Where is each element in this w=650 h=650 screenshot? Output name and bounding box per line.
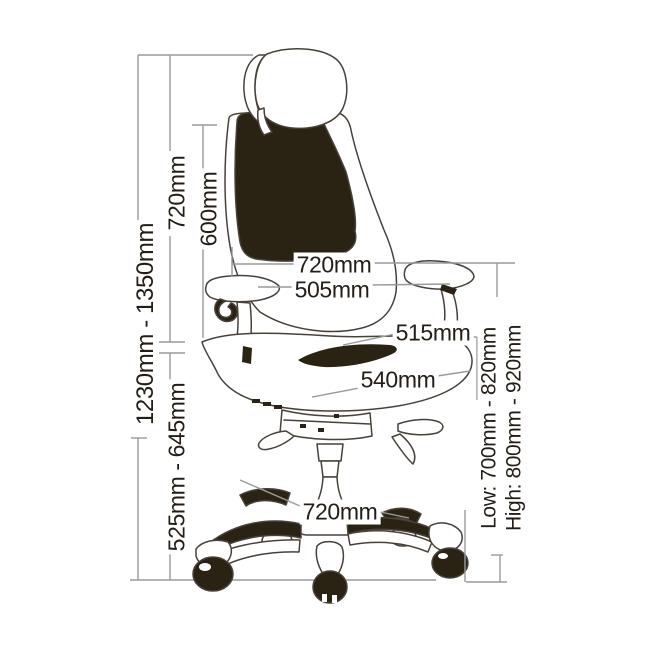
headrest-pillow	[255, 49, 347, 129]
left-armrest-lever	[215, 299, 238, 322]
armrest-span-width-label: 720mm	[294, 253, 375, 278]
seat-width-label: 505mm	[292, 278, 373, 303]
overall-height-label: 1230mm - 1350mm	[133, 220, 159, 428]
caster-front	[313, 571, 347, 603]
lever-hook-right	[392, 434, 415, 464]
seat-depth-label: 540mm	[358, 368, 439, 393]
headrest-to-seat-height-label: 720mm	[165, 153, 190, 234]
left-armrest-pad	[206, 276, 280, 302]
back-width-label: 515mm	[393, 321, 474, 346]
lever-paddle-left	[259, 431, 294, 450]
gas-lift-upper	[317, 444, 343, 461]
caster-right	[432, 548, 468, 578]
gas-lift-lower	[321, 461, 339, 477]
caster-right-highlight	[438, 553, 448, 559]
base-width-label: 720mm	[300, 500, 381, 525]
armrest-floor-high-label: High: 800mm - 920mm	[503, 322, 526, 534]
base-foot-right	[429, 523, 462, 551]
lever-paddle-right	[398, 420, 443, 435]
seat-side-mark	[242, 346, 252, 364]
backrest-height-label: 600mm	[197, 169, 222, 250]
seat-height-range-label: 525mm - 645mm	[165, 380, 190, 555]
chair-illustration	[0, 0, 650, 650]
armrest-floor-low-label: Low: 700mm - 820mm	[478, 324, 501, 532]
base-leg-front	[316, 542, 343, 574]
chair-dimension-diagram: 1230mm - 1350mm 720mm 600mm 525mm - 645m…	[0, 0, 650, 650]
caster-left-highlight	[199, 563, 211, 571]
caster-left	[193, 557, 233, 591]
